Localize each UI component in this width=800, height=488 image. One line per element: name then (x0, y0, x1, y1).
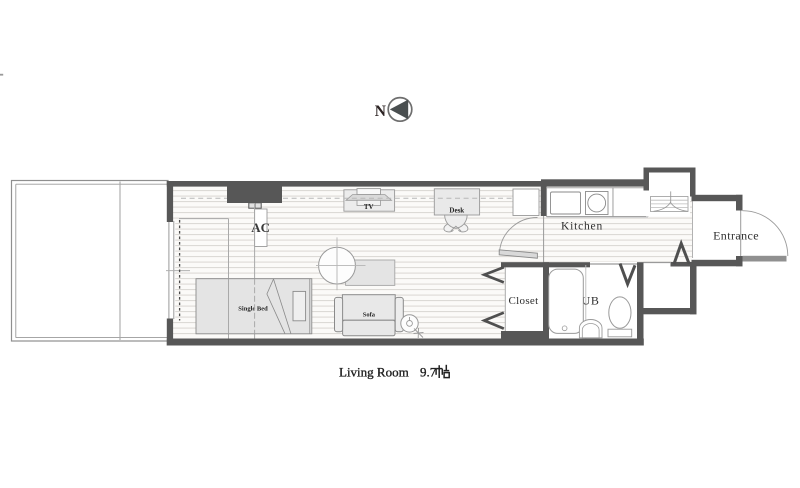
svg-text:Single Bed: Single Bed (238, 306, 268, 313)
svg-text:Living Room: Living Room (339, 365, 409, 380)
svg-text:Desk: Desk (449, 207, 464, 215)
svg-text:Sofa: Sofa (363, 311, 376, 318)
svg-text:TV: TV (364, 203, 374, 211)
svg-text:UB: UB (582, 294, 600, 308)
svg-text:9.7: 9.7 (420, 365, 437, 380)
svg-text:Entrance: Entrance (713, 229, 759, 243)
svg-text:N: N (375, 103, 386, 120)
svg-text:Closet: Closet (509, 295, 539, 307)
svg-text:Kitchen: Kitchen (561, 221, 603, 233)
